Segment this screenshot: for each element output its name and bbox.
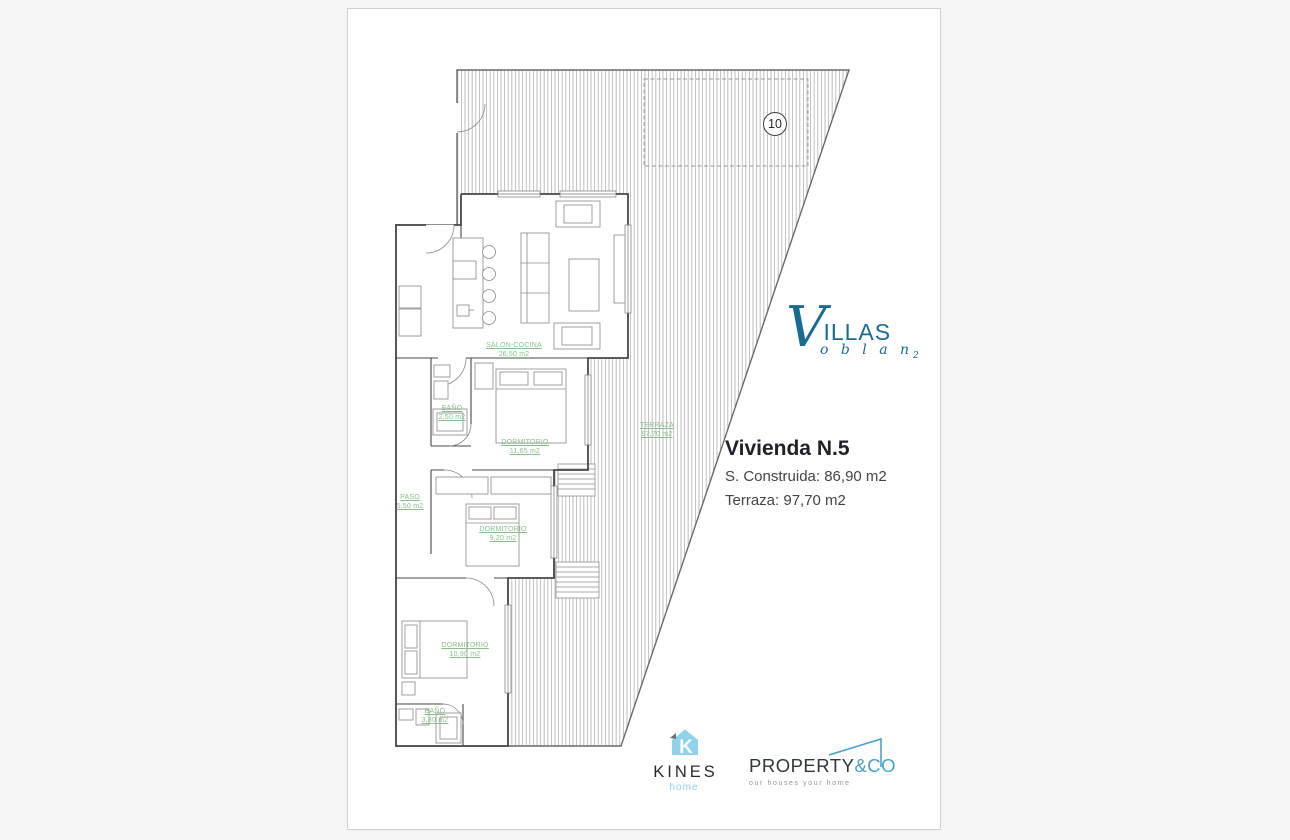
plot-number-badge: 10 xyxy=(763,112,787,136)
listing-terrace-area: Terraza: 97,70 m2 xyxy=(725,492,887,509)
villas-oblan-logo: V ILLAS o b l a n2 xyxy=(786,305,919,361)
property-logo-tagline: our houses your home xyxy=(749,780,929,787)
kines-logo: K KINES home xyxy=(636,727,732,793)
room-label-paso: PASO 5,50 m2 xyxy=(375,494,445,511)
kines-house-icon: K xyxy=(667,727,701,757)
kines-logo-subtext: home xyxy=(636,782,732,793)
property-roof-icon xyxy=(827,735,887,769)
room-label-bano-1: BAÑO 2,50 m2 xyxy=(417,405,487,422)
room-label-terraza: TERRAZA 97,70 m2 xyxy=(622,422,692,439)
listing-details: Vivienda N.5 S. Construida: 86,90 m2 Ter… xyxy=(725,437,887,509)
room-label-dormitorio-2: DORMITORIO 9,20 m2 xyxy=(468,526,538,543)
page-background: 10 SALON-COCINA 26,50 m2 BAÑO 2,50 m2 DO… xyxy=(0,0,1290,840)
kines-logo-text: KINES xyxy=(636,763,735,782)
listing-built-area: S. Construida: 86,90 m2 xyxy=(725,468,887,485)
property-co-logo: PROPERTY&CO our houses your home xyxy=(749,735,929,787)
villas-logo-subtext: o b l a n2 xyxy=(820,342,919,361)
room-label-salon-cocina: SALON-COCINA 26,50 m2 xyxy=(479,342,549,359)
room-label-dormitorio-3: DORMITORIO 10,90 m2 xyxy=(430,642,500,659)
gate-opening xyxy=(455,103,460,133)
room-label-dormitorio-1: DORMITORIO 11,65 m2 xyxy=(490,439,560,456)
plan-sheet: 10 SALON-COCINA 26,50 m2 BAÑO 2,50 m2 DO… xyxy=(347,8,941,830)
listing-title: Vivienda N.5 xyxy=(725,437,887,461)
svg-text:K: K xyxy=(679,737,693,757)
room-label-bano-2: BAÑO 3,30 m2 xyxy=(400,708,470,725)
